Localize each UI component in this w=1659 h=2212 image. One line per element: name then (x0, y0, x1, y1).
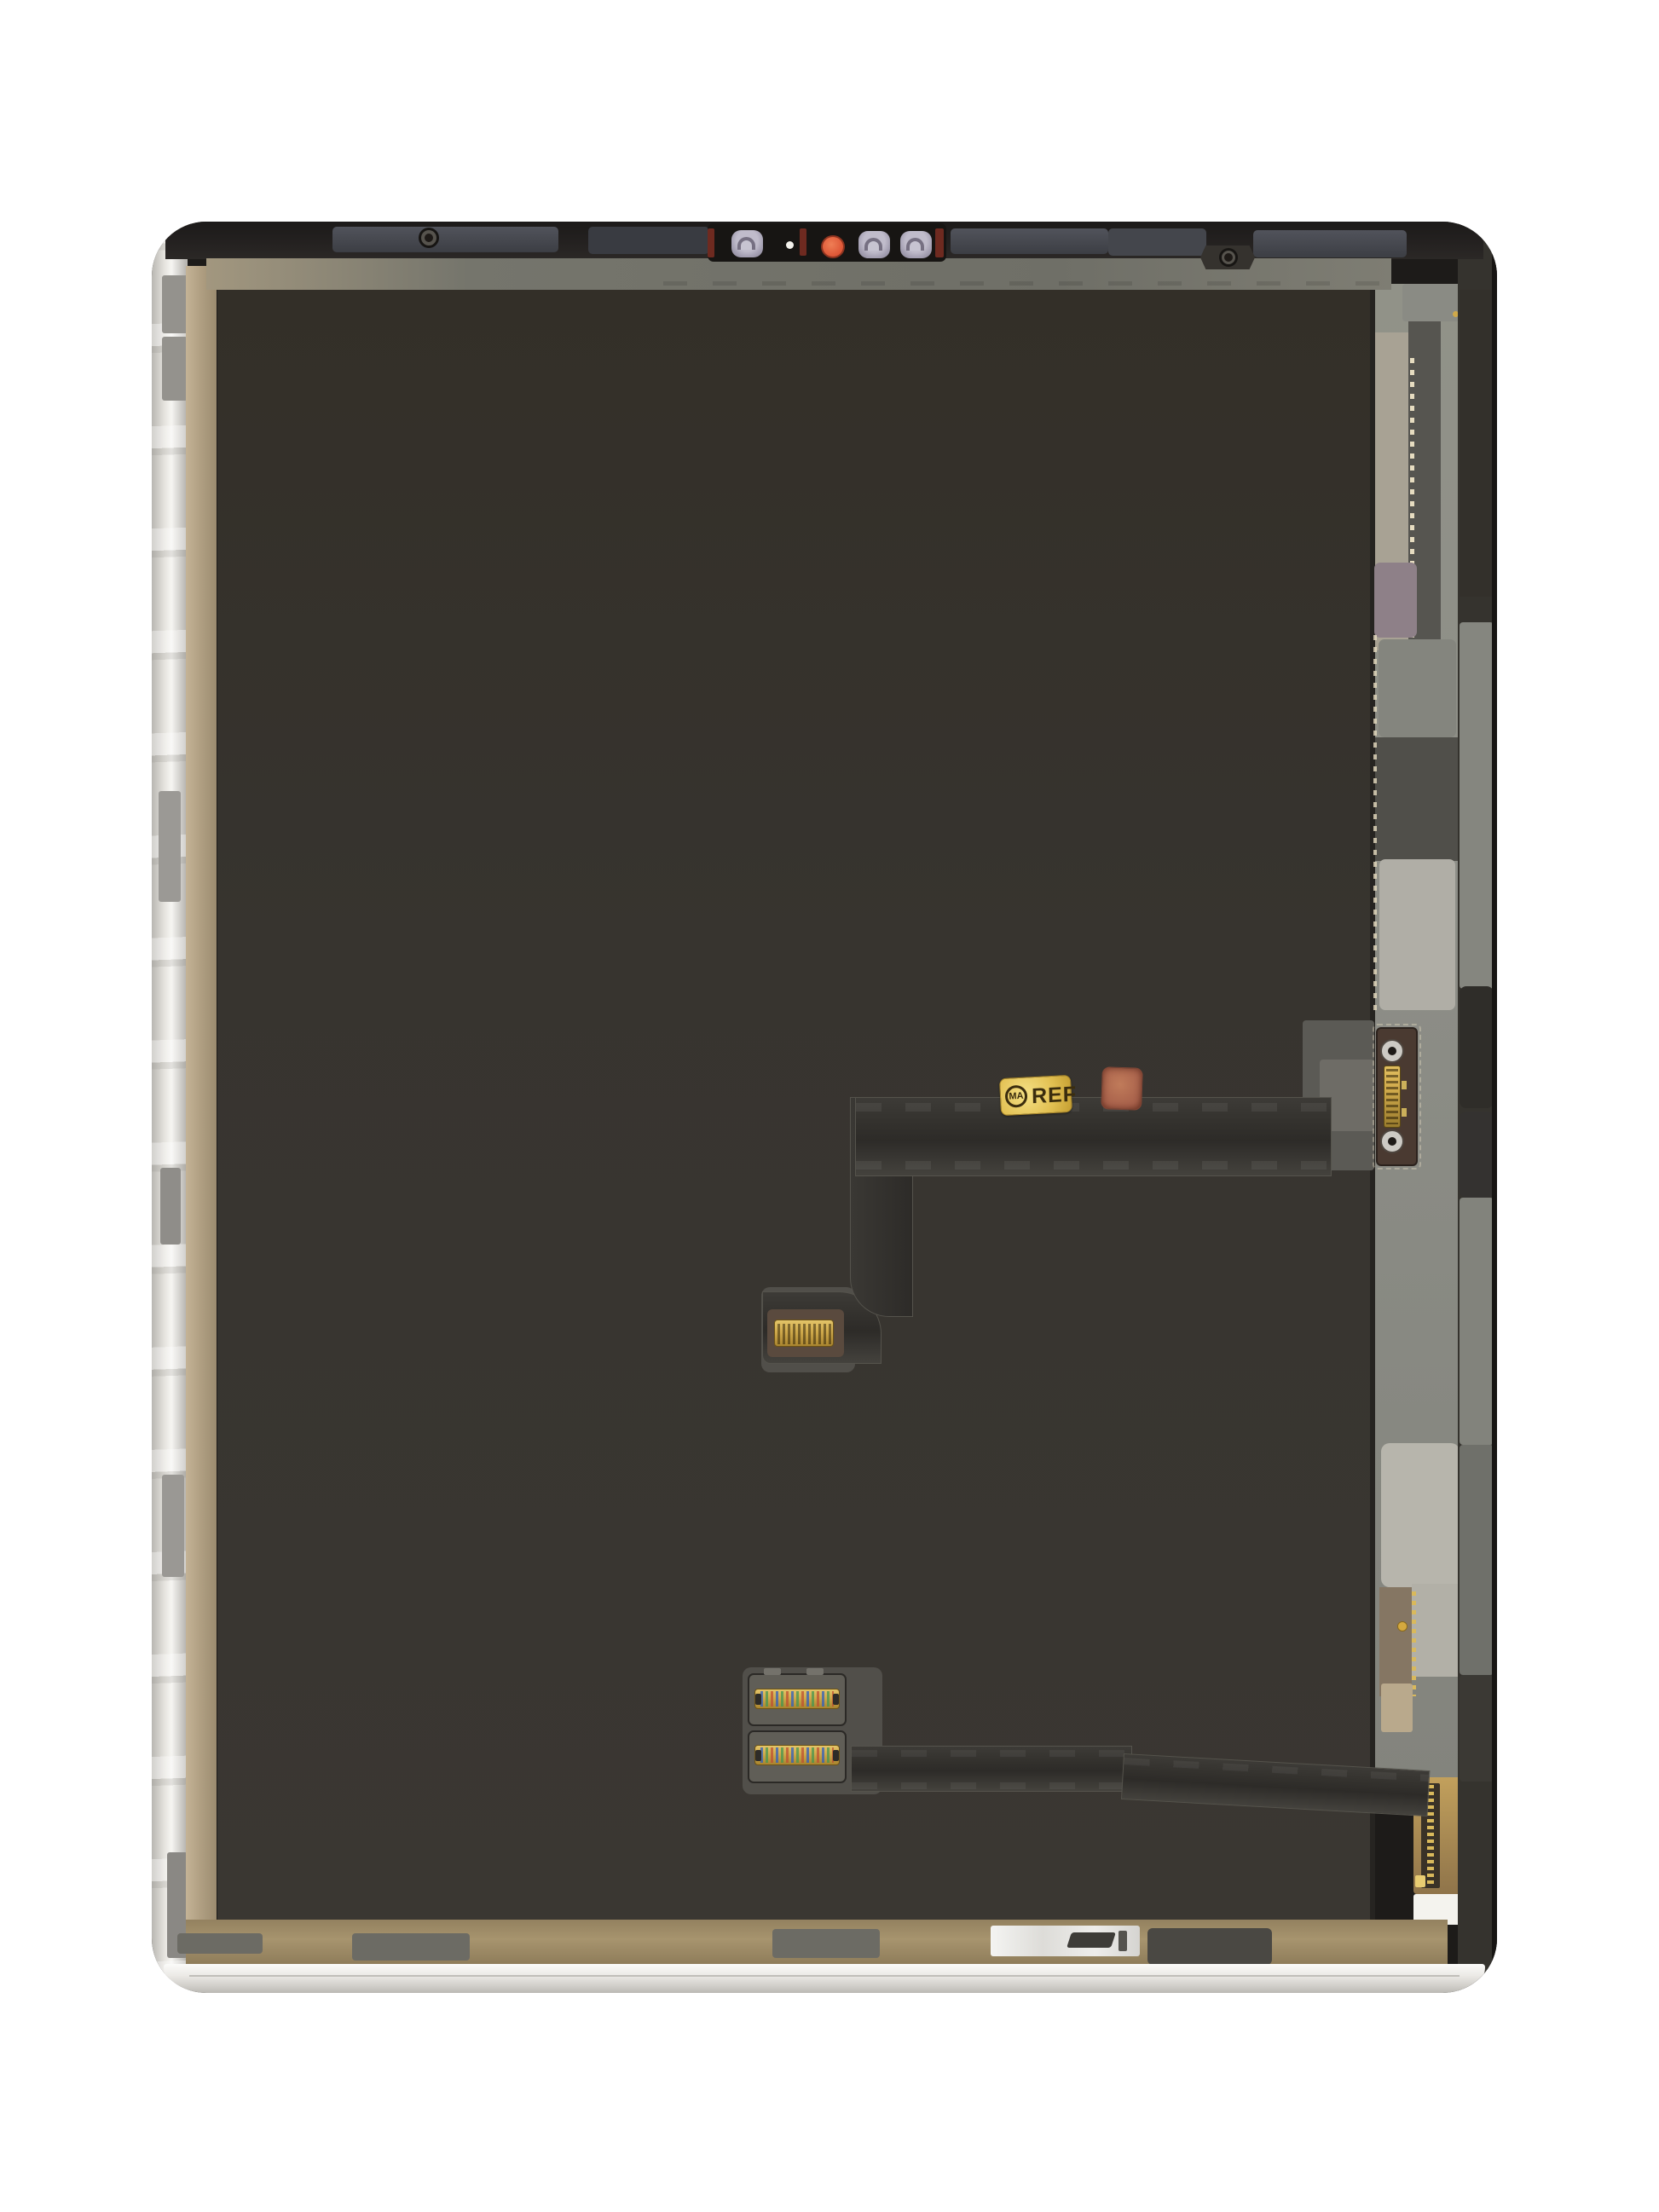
board-connector (1384, 1066, 1401, 1128)
contact-strip (1412, 1591, 1416, 1696)
edge-pad (1460, 290, 1494, 597)
bezel-pad (772, 1929, 880, 1958)
contact-strip (1373, 635, 1377, 1010)
flex-pin-colors (760, 1691, 834, 1707)
flex-ribs (852, 1782, 1131, 1789)
camera-lens-cover (858, 231, 890, 258)
flex-ribs (852, 1750, 1131, 1757)
tan-pad (1381, 1684, 1413, 1732)
photo-canvas: MA REF (0, 0, 1659, 2212)
block-tab (764, 1668, 781, 1675)
bottom-frame-edge (164, 1964, 1485, 1993)
edge-pad (1460, 622, 1494, 989)
flex-pin-colors (760, 1747, 834, 1763)
edge-pad (1460, 1675, 1494, 1782)
connector-screw-hole (1382, 1131, 1402, 1152)
connector-tab (1402, 1081, 1407, 1089)
pin-end-cap (755, 1694, 761, 1705)
right-pad-mauve (1374, 563, 1417, 638)
display-flex-band (855, 1097, 1332, 1176)
scuff-mark (1066, 1932, 1116, 1948)
flex-ribs (856, 1161, 1331, 1170)
block-tab (806, 1668, 824, 1675)
copper-pad (1101, 1066, 1143, 1111)
chrome-scuff (991, 1926, 1140, 1956)
camera-flex-red-edge (800, 228, 806, 256)
camera-flex-red-edge (935, 228, 944, 257)
flex-pin-row (754, 1745, 840, 1765)
screw-top-left (421, 230, 436, 245)
edge-pad (1460, 1112, 1494, 1198)
right-pad-large-lower (1412, 1584, 1460, 1677)
camera-lens-arch (906, 238, 924, 251)
notch-brown-area (1379, 1587, 1412, 1696)
lcd-connector-pins (777, 1324, 832, 1344)
flex-ribs (856, 1103, 1331, 1112)
right-pad-large (1381, 1443, 1460, 1587)
right-flex-top-bar (1402, 284, 1460, 321)
screw-top-right (1222, 251, 1235, 264)
bezel-pad (352, 1933, 470, 1961)
ref-sticker-text: REF (1032, 1083, 1077, 1107)
camera-lens-arch (864, 238, 882, 251)
frame-bevel-line (189, 1975, 1460, 1977)
gold-pad (1415, 1875, 1425, 1887)
right-pad-light (1379, 859, 1455, 1010)
sensor-dot (786, 241, 794, 249)
left-adhesive-strip (186, 266, 217, 1935)
bezel-patch (1253, 230, 1407, 257)
camera-seal-orange (821, 235, 845, 258)
tablet-display-assembly: MA REF (152, 222, 1497, 1993)
bezel-patch (1108, 228, 1206, 256)
edge-pad (1460, 1198, 1494, 1445)
right-pad-dark (1375, 737, 1458, 861)
gold-dot (1397, 1621, 1408, 1632)
flex-pin-row (754, 1689, 840, 1709)
scuff-mark (1119, 1931, 1127, 1951)
top-inner-bezel-dashes (663, 281, 1388, 286)
camera-lens-cover (731, 230, 763, 257)
bottom-flex-band (851, 1746, 1132, 1792)
connector-tab (1402, 1108, 1407, 1117)
right-pad-medium (1379, 639, 1456, 737)
connector-pins (1386, 1069, 1398, 1124)
foil-tab (160, 1168, 181, 1245)
bezel-pad-dark (1147, 1928, 1272, 1965)
foil-tab (162, 337, 188, 401)
bezel-pad (177, 1933, 263, 1954)
bezel-patch (332, 227, 558, 252)
connector-screw-hole (1382, 1041, 1402, 1061)
camera-flex-red-edge (708, 228, 714, 257)
right-edge-rim (1492, 222, 1497, 1993)
bezel-patch (951, 228, 1108, 254)
pin-end-cap (833, 1694, 839, 1705)
pin-end-cap (833, 1750, 839, 1761)
foil-tab (159, 791, 181, 902)
ref-sticker: MA REF (999, 1075, 1072, 1116)
ref-sticker-logo: MA (1004, 1085, 1027, 1108)
edge-pad (1460, 1445, 1494, 1675)
bezel-patch (588, 227, 709, 254)
pin-end-cap (755, 1750, 761, 1761)
foil-tab (162, 1475, 184, 1577)
left-edge-foil-texture (152, 222, 188, 1993)
camera-lens-cover (900, 231, 932, 258)
lcd-connector (774, 1320, 834, 1347)
camera-lens-arch (737, 237, 755, 250)
edge-pad (1460, 986, 1494, 1108)
